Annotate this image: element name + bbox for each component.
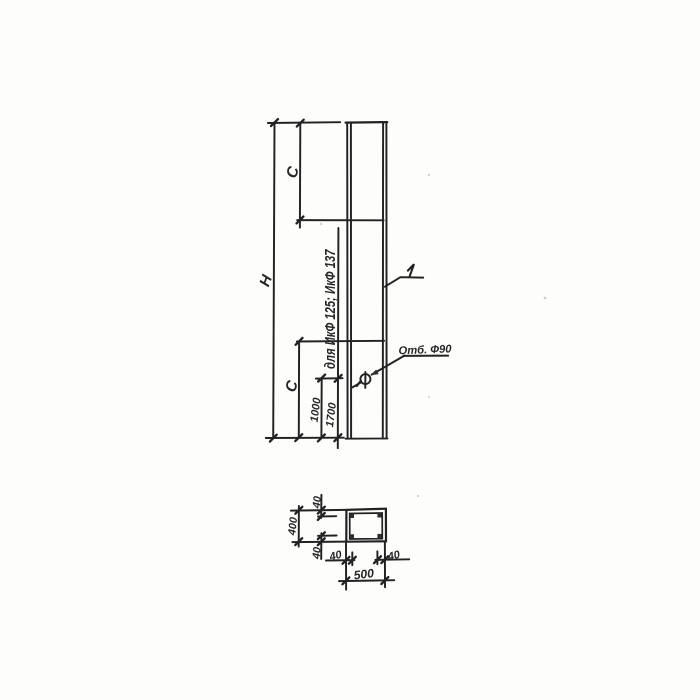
svg-text:40: 40	[327, 549, 344, 564]
svg-text:Отб. Ф90: Отб. Ф90	[398, 343, 452, 357]
svg-text:для ИкФ 125; ИкФ 137: для ИкФ 125; ИкФ 137	[322, 249, 339, 369]
svg-text:500: 500	[353, 566, 375, 582]
svg-text:40: 40	[386, 549, 403, 564]
svg-text:40: 40	[311, 496, 324, 510]
svg-text:1700: 1700	[324, 401, 339, 428]
svg-text:400: 400	[286, 517, 300, 537]
svg-text:40: 40	[310, 546, 323, 560]
